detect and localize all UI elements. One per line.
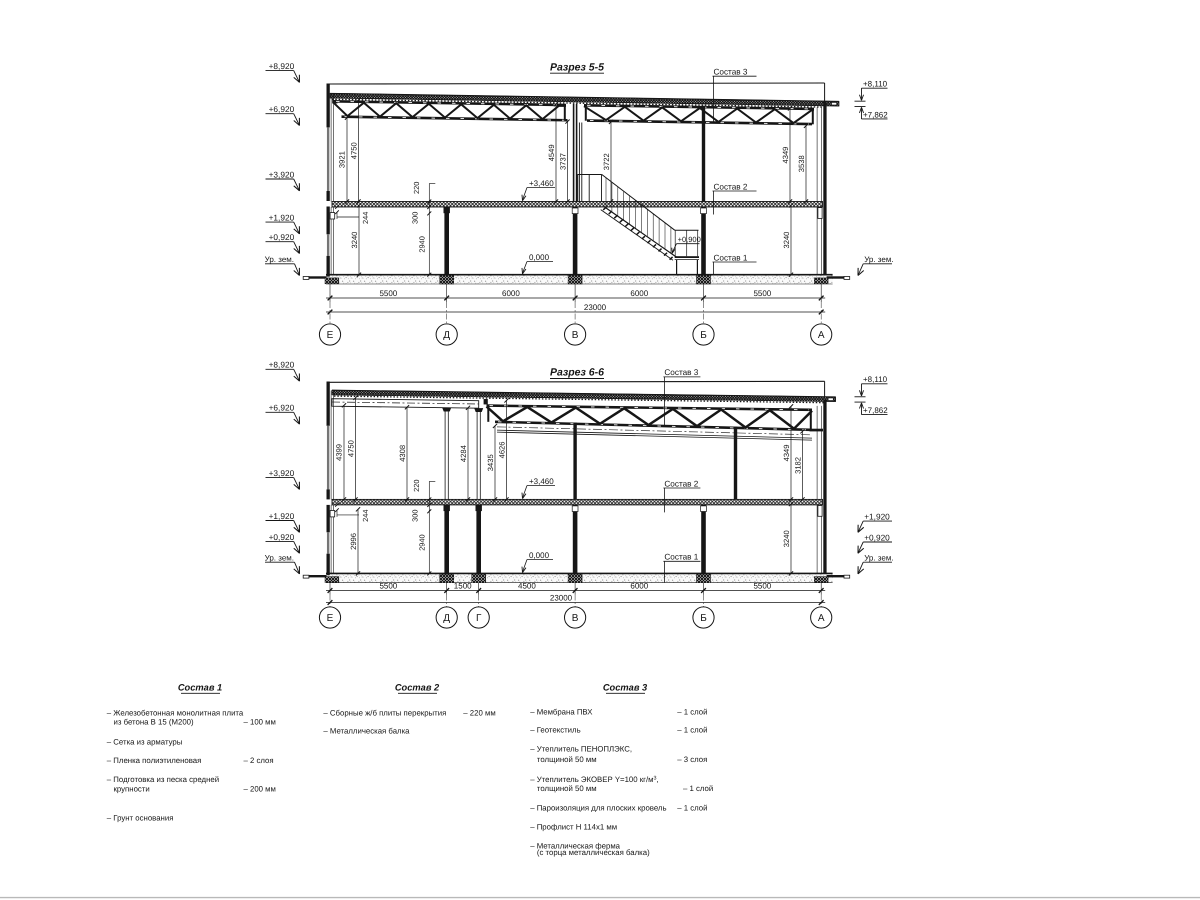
svg-text:– 200 мм: – 200 мм xyxy=(244,785,276,794)
svg-text:+3,460: +3,460 xyxy=(529,477,554,486)
svg-text:– 3 слоя: – 3 слоя xyxy=(677,755,707,764)
svg-text:толщиной 50 мм: толщиной 50 мм xyxy=(537,784,597,793)
svg-text:А: А xyxy=(818,330,825,341)
svg-text:4284: 4284 xyxy=(459,445,468,462)
svg-text:Ур. зем.: Ур. зем. xyxy=(864,554,893,563)
svg-text:244: 244 xyxy=(361,212,370,224)
svg-text:Ур. зем.: Ур. зем. xyxy=(265,554,294,563)
svg-text:5500: 5500 xyxy=(379,582,397,591)
svg-text:Состав 3: Состав 3 xyxy=(603,683,648,693)
svg-text:23000: 23000 xyxy=(584,303,607,312)
svg-text:+8,920: +8,920 xyxy=(269,61,295,71)
svg-text:4308: 4308 xyxy=(398,445,407,462)
svg-text:В: В xyxy=(572,330,579,341)
svg-text:4750: 4750 xyxy=(349,142,358,159)
svg-text:– Профлист Н 114х1 мм: – Профлист Н 114х1 мм xyxy=(530,823,617,832)
svg-text:+7,862: +7,862 xyxy=(863,406,888,415)
svg-text:5500: 5500 xyxy=(753,582,771,591)
svg-text:– 1 слой: – 1 слой xyxy=(677,803,707,812)
svg-text:3240: 3240 xyxy=(782,530,791,547)
svg-text:– Геотекстиль: – Геотекстиль xyxy=(530,725,580,734)
svg-text:Состав 2: Состав 2 xyxy=(395,683,440,693)
svg-text:– Мембрана ПВХ: – Мембрана ПВХ xyxy=(530,707,593,716)
svg-text:300: 300 xyxy=(410,510,419,522)
svg-text:3182: 3182 xyxy=(793,457,802,474)
svg-text:+7,862: +7,862 xyxy=(863,110,888,119)
svg-text:А: А xyxy=(818,613,825,624)
svg-text:6000: 6000 xyxy=(502,289,520,298)
svg-text:– Утеплитель ПЕНОПЛЭКС,: – Утеплитель ПЕНОПЛЭКС, xyxy=(530,745,632,754)
svg-text:2940: 2940 xyxy=(418,534,427,550)
svg-text:Состав 2: Состав 2 xyxy=(664,479,698,488)
svg-text:4750: 4750 xyxy=(346,440,355,457)
svg-text:4626: 4626 xyxy=(497,441,506,458)
svg-text:4349: 4349 xyxy=(782,444,791,461)
svg-text:– 1 слой: – 1 слой xyxy=(677,725,707,734)
svg-text:+0,920: +0,920 xyxy=(269,232,295,242)
svg-text:– Пленка полиэтиленовая: – Пленка полиэтиленовая xyxy=(107,756,202,765)
svg-text:– Металлическая балка: – Металлическая балка xyxy=(323,727,410,736)
svg-text:244: 244 xyxy=(361,510,370,522)
svg-text:+0,920: +0,920 xyxy=(269,532,295,542)
svg-text:2996: 2996 xyxy=(349,533,358,550)
svg-text:– Сборные ж/б плиты перекрытия: – Сборные ж/б плиты перекрытия xyxy=(323,709,446,718)
svg-text:+3,920: +3,920 xyxy=(269,468,295,478)
svg-text:– 220 мм: – 220 мм xyxy=(463,709,495,718)
svg-text:– 1 слой: – 1 слой xyxy=(683,784,713,793)
svg-text:Разрез 6-6: Разрез 6-6 xyxy=(550,367,604,379)
svg-text:4549: 4549 xyxy=(547,144,556,161)
svg-text:Е: Е xyxy=(327,613,334,624)
svg-text:3722: 3722 xyxy=(602,153,611,170)
svg-text:0,000: 0,000 xyxy=(529,551,550,560)
svg-text:– Железобетонная монолитная п: – Железобетонная монолитная плита xyxy=(107,709,244,718)
svg-text:+8,110: +8,110 xyxy=(863,80,888,89)
svg-text:Д: Д xyxy=(443,613,450,624)
svg-text:+8,920: +8,920 xyxy=(269,360,295,370)
svg-text:3538: 3538 xyxy=(797,155,806,172)
svg-text:+1,920: +1,920 xyxy=(864,512,890,522)
svg-text:– 100 мм: – 100 мм xyxy=(244,718,276,727)
svg-text:2940: 2940 xyxy=(417,236,426,252)
svg-text:– 2 слоя: – 2 слоя xyxy=(244,756,274,765)
svg-text:+6,920: +6,920 xyxy=(269,403,295,413)
svg-text:0,000: 0,000 xyxy=(529,253,550,262)
svg-text:– Сетка из арматуры: – Сетка из арматуры xyxy=(107,737,183,746)
svg-text:– 1 слой: – 1 слой xyxy=(677,707,707,716)
svg-text:из бетона В 15 (М200): из бетона В 15 (М200) xyxy=(114,718,194,727)
svg-text:Состав 2: Состав 2 xyxy=(714,182,748,191)
svg-text:23000: 23000 xyxy=(550,594,573,603)
svg-text:+8,110: +8,110 xyxy=(863,375,888,384)
svg-text:– Пароизоляция для плоских кро: – Пароизоляция для плоских кровель xyxy=(530,803,666,812)
svg-text:– Подготовка из песка средней: – Подготовка из песка средней xyxy=(107,775,219,784)
svg-text:+1,920: +1,920 xyxy=(269,213,295,223)
svg-text:6000: 6000 xyxy=(630,289,648,298)
svg-text:– Утеплитель ЭКОВЕР Y=100 кг/м: – Утеплитель ЭКОВЕР Y=100 кг/м3, xyxy=(530,775,659,784)
svg-text:220: 220 xyxy=(412,480,421,492)
svg-text:Состав 3: Состав 3 xyxy=(714,68,748,77)
svg-text:Состав 1: Состав 1 xyxy=(714,253,748,262)
svg-text:Состав 1: Состав 1 xyxy=(178,683,222,693)
svg-text:толщиной 50 мм: толщиной 50 мм xyxy=(537,755,597,764)
svg-text:Состав 1: Состав 1 xyxy=(664,553,698,562)
svg-text:4349: 4349 xyxy=(781,147,790,164)
svg-text:Ур. зем.: Ур. зем. xyxy=(265,255,294,264)
svg-text:3737: 3737 xyxy=(558,153,567,170)
svg-text:+3,460: +3,460 xyxy=(529,179,554,188)
svg-text:5500: 5500 xyxy=(753,289,771,298)
svg-text:3435: 3435 xyxy=(486,454,495,471)
svg-text:6000: 6000 xyxy=(630,582,648,591)
svg-text:220: 220 xyxy=(412,182,421,194)
svg-text:4399: 4399 xyxy=(335,444,344,461)
svg-text:Разрез 5-5: Разрез 5-5 xyxy=(550,61,604,73)
svg-text:4500: 4500 xyxy=(518,582,536,591)
svg-text:+1,920: +1,920 xyxy=(269,511,295,521)
svg-text:3240: 3240 xyxy=(782,232,791,249)
svg-text:1500: 1500 xyxy=(454,582,472,591)
svg-text:– Грунт основания: – Грунт основания xyxy=(107,813,174,822)
svg-text:+3,920: +3,920 xyxy=(269,169,295,179)
svg-text:Д: Д xyxy=(443,330,450,341)
svg-text:Б: Б xyxy=(700,330,707,341)
svg-text:3921: 3921 xyxy=(338,151,347,168)
svg-text:300: 300 xyxy=(410,212,419,224)
svg-text:Состав 3: Состав 3 xyxy=(664,368,698,377)
svg-text:3240: 3240 xyxy=(350,232,359,249)
svg-text:+6,920: +6,920 xyxy=(269,104,295,114)
svg-text:5500: 5500 xyxy=(379,289,397,298)
svg-text:(с торца металлическая балка): (с торца металлическая балка) xyxy=(537,848,650,857)
svg-text:Ур. зем.: Ур. зем. xyxy=(864,255,893,264)
svg-text:В: В xyxy=(572,613,579,624)
svg-text:+0,900: +0,900 xyxy=(678,235,701,244)
svg-text:Б: Б xyxy=(700,613,707,624)
svg-text:+0,920: +0,920 xyxy=(864,532,890,542)
svg-text:крупности: крупности xyxy=(114,785,150,794)
svg-text:Е: Е xyxy=(327,330,334,341)
svg-text:Г: Г xyxy=(476,613,482,624)
